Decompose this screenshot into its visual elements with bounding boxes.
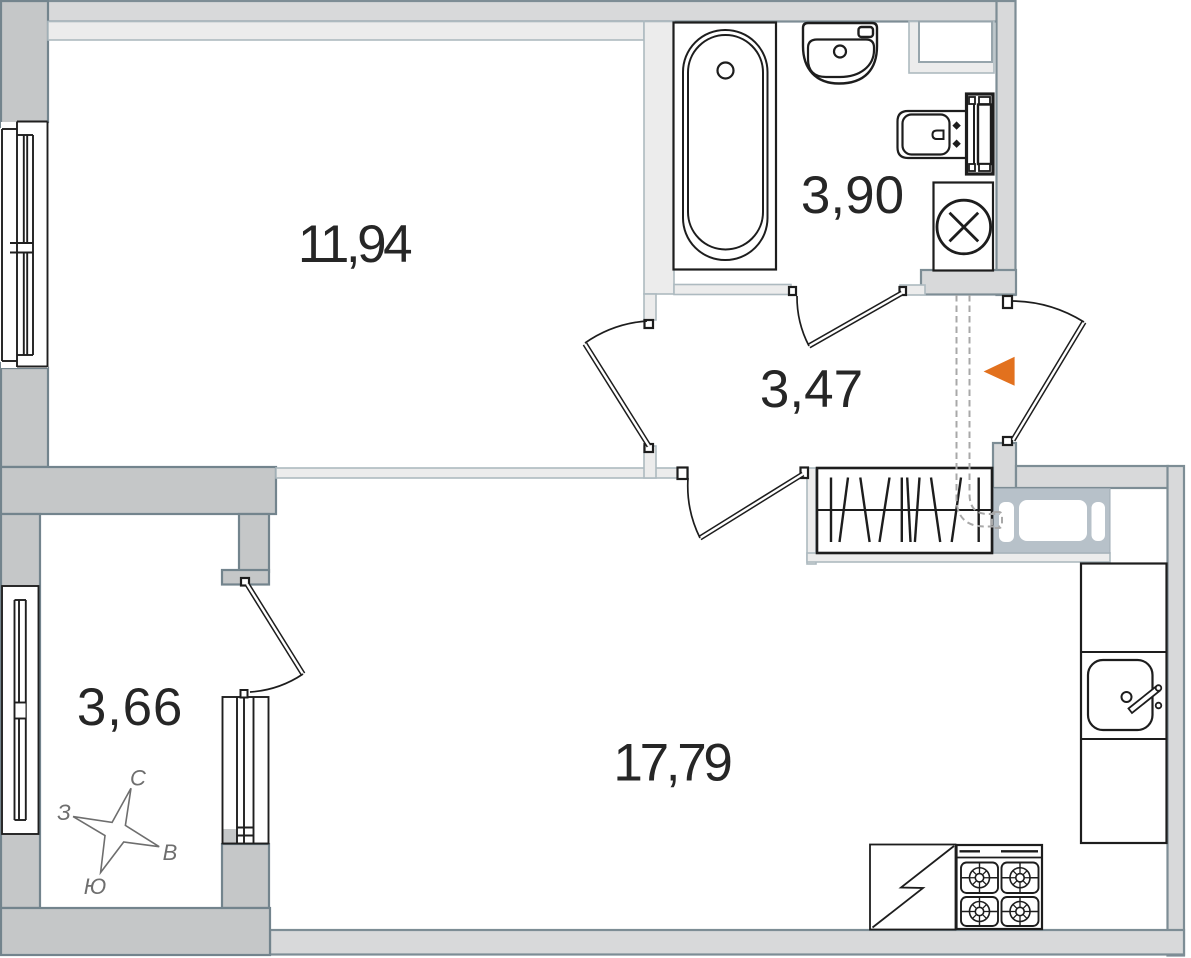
svg-text:В: В (163, 840, 178, 865)
svg-text:17,79: 17,79 (613, 734, 730, 793)
svg-text:3,66: 3,66 (77, 678, 183, 737)
svg-text:З: З (57, 800, 71, 825)
svg-text:Ю: Ю (84, 874, 107, 899)
svg-text:11,94: 11,94 (298, 215, 411, 274)
svg-text:С: С (130, 766, 146, 791)
svg-text:3,90: 3,90 (801, 166, 904, 225)
svg-text:3,47: 3,47 (760, 360, 863, 419)
